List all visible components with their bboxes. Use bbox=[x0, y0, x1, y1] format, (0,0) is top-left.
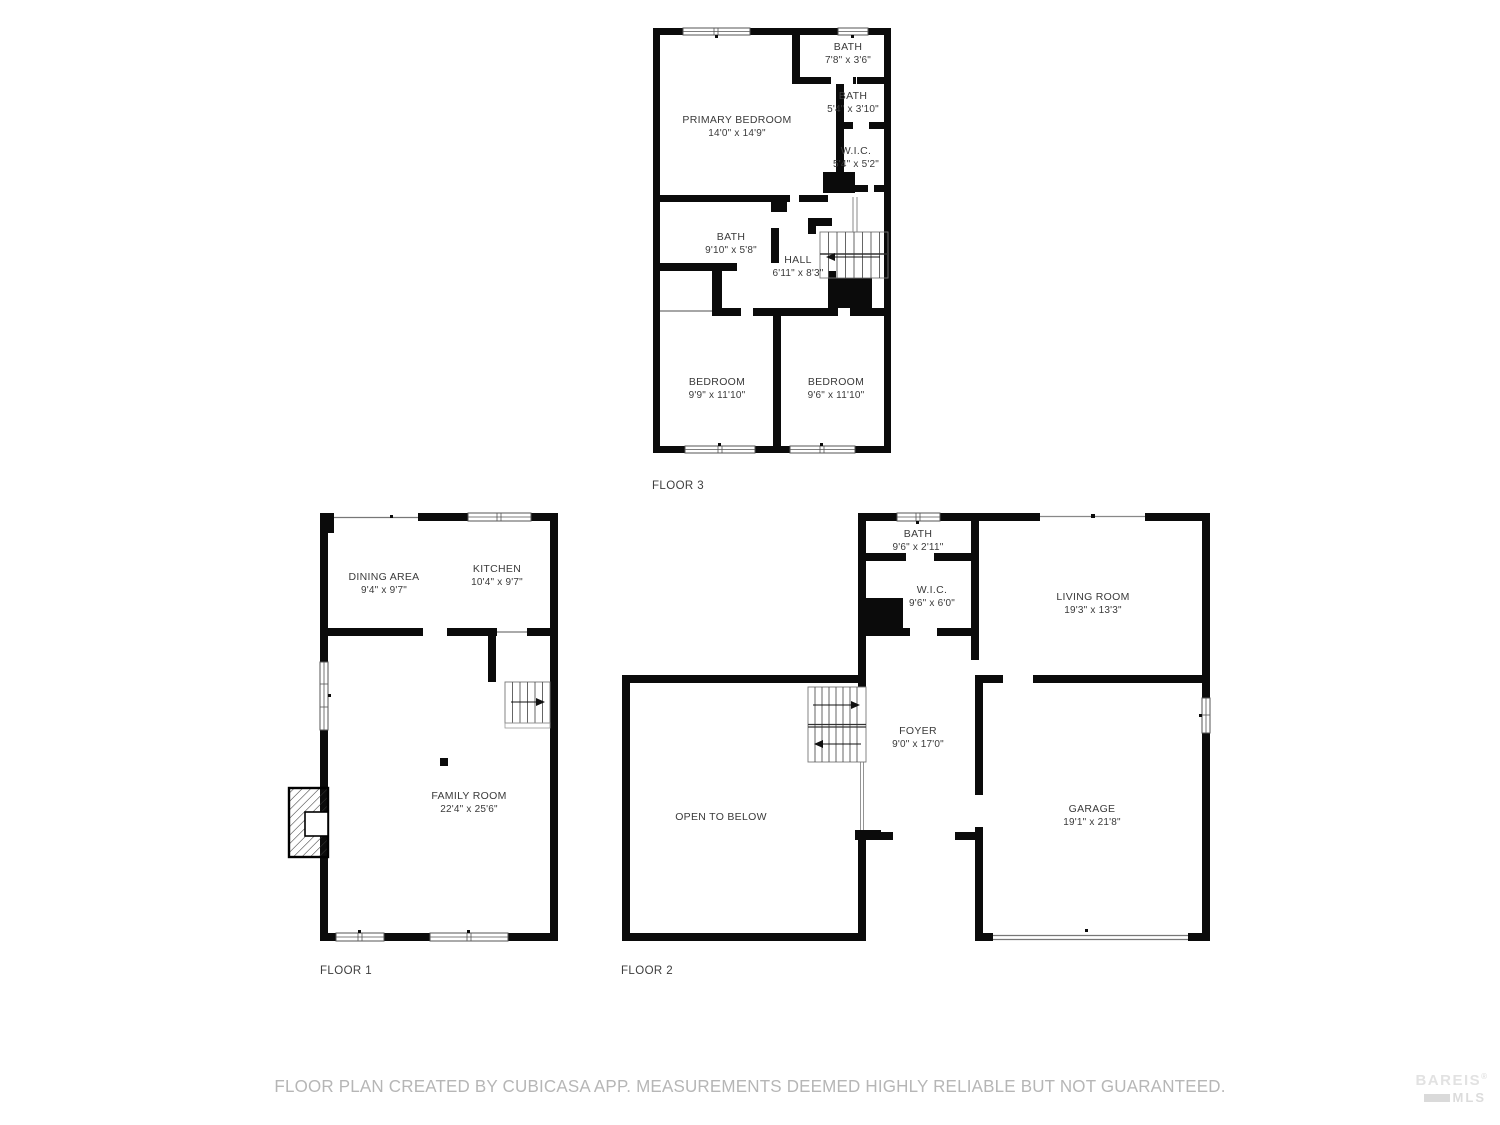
room-label-bath-floor2: BATH 9'6" x 2'11" bbox=[893, 528, 944, 554]
window-icon bbox=[1202, 698, 1210, 733]
floor2-title: FLOOR 2 bbox=[621, 965, 673, 977]
window-icon bbox=[790, 446, 855, 453]
room-label-bath-main: BATH 9'10" x 5'8" bbox=[705, 231, 757, 257]
room-label-bedroom-right: BEDROOM 9'6" x 11'10" bbox=[808, 376, 865, 402]
stairs-icon bbox=[820, 197, 888, 278]
room-label-family-room: FAMILY ROOM 22'4" x 25'6" bbox=[431, 790, 506, 816]
floor1-plan bbox=[285, 500, 575, 950]
window-icon bbox=[897, 513, 940, 521]
room-label-hall: HALL 6'11" x 8'3" bbox=[773, 254, 824, 280]
stairs-icon bbox=[505, 682, 550, 728]
window-icon bbox=[838, 28, 868, 35]
window-icon bbox=[685, 446, 755, 453]
room-label-wic-floor3: W.I.C. 5'4" x 5'2" bbox=[833, 145, 879, 171]
logo-bar bbox=[1424, 1094, 1450, 1102]
room-label-bedroom-left: BEDROOM 9'9" x 11'10" bbox=[689, 376, 746, 402]
window-icon bbox=[320, 662, 328, 730]
room-label-bath-mid: BATH 5'4" x 3'10" bbox=[827, 90, 879, 116]
chimney-block bbox=[823, 172, 855, 193]
window-icon bbox=[683, 28, 750, 35]
fireplace-icon bbox=[289, 788, 328, 857]
window-icon bbox=[430, 933, 508, 941]
room-label-foyer: FOYER 9'0" x 17'0" bbox=[892, 725, 944, 751]
room-label-open-to-below: OPEN TO BELOW bbox=[675, 811, 767, 824]
disclaimer-text: FLOOR PLAN CREATED BY CUBICASA APP. MEAS… bbox=[274, 1076, 1225, 1097]
column-post bbox=[440, 758, 448, 766]
floor-plan-canvas: PRIMARY BEDROOM 14'0" x 14'9" BATH 7'8" … bbox=[0, 0, 1500, 1125]
room-label-living-room: LIVING ROOM 19'3" x 13'3" bbox=[1056, 591, 1129, 617]
room-label-wic-floor2: W.I.C. 9'6" x 6'0" bbox=[909, 584, 955, 610]
logo-bareis-text: BAREIS® bbox=[1412, 1072, 1492, 1089]
bareis-mls-logo: BAREIS® MLS bbox=[1412, 1072, 1492, 1105]
chimney-block bbox=[835, 278, 872, 308]
stairs-icon bbox=[808, 687, 866, 762]
room-label-garage: GARAGE 19'1" x 21'8" bbox=[1063, 803, 1120, 829]
room-label-primary-bedroom: PRIMARY BEDROOM 14'0" x 14'9" bbox=[682, 114, 791, 140]
registered-mark-icon: ® bbox=[1481, 1072, 1488, 1081]
room-label-dining-area: DINING AREA 9'4" x 9'7" bbox=[349, 571, 420, 597]
chimney-block bbox=[861, 598, 903, 632]
window-icon bbox=[468, 513, 531, 521]
logo-mls-text: MLS bbox=[1453, 1090, 1486, 1105]
room-label-bath-top: BATH 7'8" x 3'6" bbox=[825, 41, 871, 67]
floor3-title: FLOOR 3 bbox=[652, 480, 704, 492]
room-label-kitchen: KITCHEN 10'4" x 9'7" bbox=[471, 563, 523, 589]
window-icon bbox=[336, 933, 384, 941]
floor1-title: FLOOR 1 bbox=[320, 965, 372, 977]
